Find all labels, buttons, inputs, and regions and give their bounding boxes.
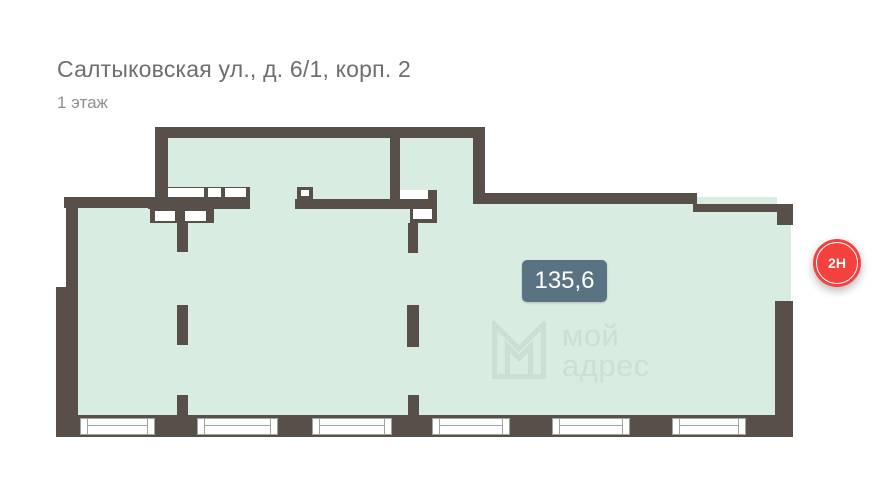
wall-segment bbox=[56, 287, 78, 417]
window bbox=[80, 418, 155, 435]
wall-segment bbox=[295, 199, 437, 209]
wall-niche bbox=[155, 211, 175, 221]
area-value: 135,6 bbox=[534, 267, 594, 295]
partition-wall bbox=[408, 223, 418, 253]
wall-segment bbox=[66, 197, 78, 287]
wall-niche bbox=[413, 209, 432, 219]
window bbox=[432, 418, 510, 435]
unit-badge-label: 2Н bbox=[828, 255, 846, 271]
door-opening bbox=[168, 188, 204, 197]
door-opening bbox=[225, 188, 246, 197]
wall-segment bbox=[155, 127, 168, 198]
door-opening bbox=[208, 188, 221, 197]
partition-wall bbox=[407, 305, 419, 347]
wall-segment bbox=[428, 190, 437, 209]
door-opening bbox=[400, 190, 428, 199]
wall-segment bbox=[777, 204, 793, 225]
area-label: 135,6 bbox=[522, 260, 607, 302]
wall-segment bbox=[148, 197, 250, 209]
window bbox=[672, 418, 746, 435]
entrance-opening bbox=[775, 225, 791, 301]
wall-niche bbox=[301, 190, 309, 196]
window bbox=[552, 418, 630, 435]
wall-segment bbox=[485, 193, 697, 204]
partition-wall bbox=[177, 223, 188, 252]
window bbox=[312, 418, 392, 435]
wall-segment bbox=[775, 301, 793, 421]
floor-area bbox=[250, 188, 295, 209]
wall-segment bbox=[473, 127, 485, 204]
wall-segment bbox=[390, 138, 400, 199]
wall-segment bbox=[155, 127, 485, 138]
unit-badge[interactable]: 2Н bbox=[813, 239, 861, 287]
wall-niche bbox=[185, 211, 206, 221]
window bbox=[197, 418, 278, 435]
floor-plan: мой адрес 135,6 2Н bbox=[0, 0, 896, 500]
partition-wall bbox=[177, 305, 188, 345]
